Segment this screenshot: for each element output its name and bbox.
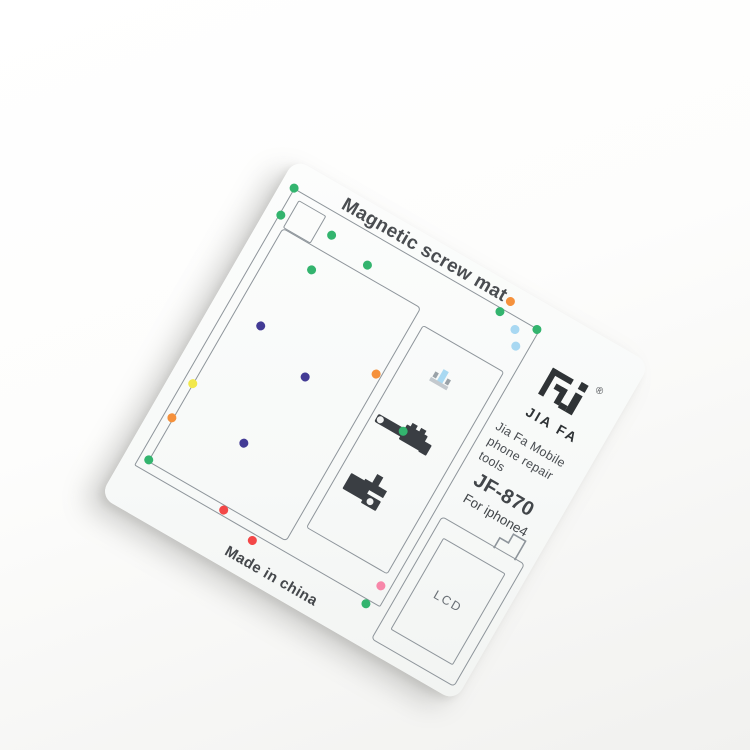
magnetic-screw-mat-card: Magnetic screw mat ® JIA FA Jia Fa Mobil… — [100, 159, 650, 702]
photo-background: Magnetic screw mat ® JIA FA Jia Fa Mobil… — [0, 0, 750, 750]
orange-screw-dot — [504, 295, 516, 307]
registered-trademark-mark: ® — [593, 385, 605, 398]
lcd-label: LCD — [431, 588, 465, 616]
